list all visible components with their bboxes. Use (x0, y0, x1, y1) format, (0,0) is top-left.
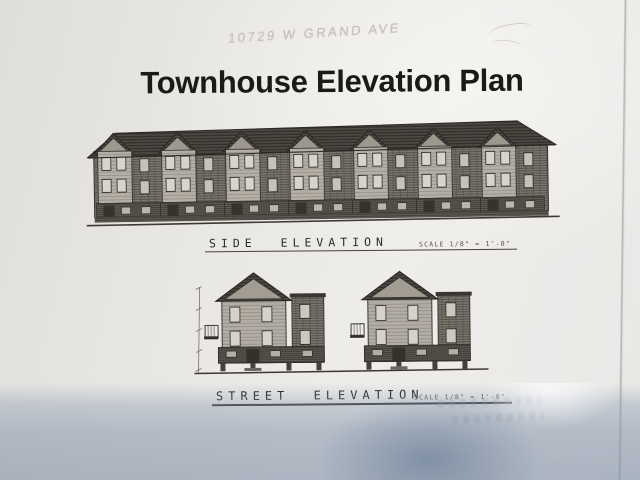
pencil-scribble-mark (487, 21, 533, 42)
show-through-smudge (452, 412, 544, 423)
street-house-left (203, 272, 326, 371)
side-elevation-scale-note: SCALE 1/8" = 1'-0" (419, 240, 511, 249)
side-elevation-label: SIDE ELEVATION (209, 235, 388, 251)
street-elevation-scale-note: SCALE 1/8" = 1'-0" (414, 393, 506, 402)
townhouse-row (85, 120, 559, 225)
street-elevation-label: STREET ELEVATION (216, 387, 424, 403)
page-title: Townhouse Elevation Plan (0, 62, 640, 103)
pencil-scribble-mark (492, 38, 523, 52)
photo-of-elevation-plan-page: 10729 W GRAND AVE Townhouse Elevation Pl… (0, 0, 640, 480)
side-elevation-caption: SIDE ELEVATION SCALE 1/8" = 1'-0" (205, 233, 517, 253)
street-elevation-drawing (185, 258, 496, 386)
handwritten-address-note: 10729 W GRAND AVE (228, 17, 449, 46)
street-house-right (349, 271, 472, 370)
street-elevation-caption: STREET ELEVATION SCALE 1/8" = 1'-0" (212, 386, 512, 407)
dimension-line (195, 286, 203, 373)
ground-line (195, 369, 489, 374)
side-elevation-drawing (81, 114, 563, 234)
